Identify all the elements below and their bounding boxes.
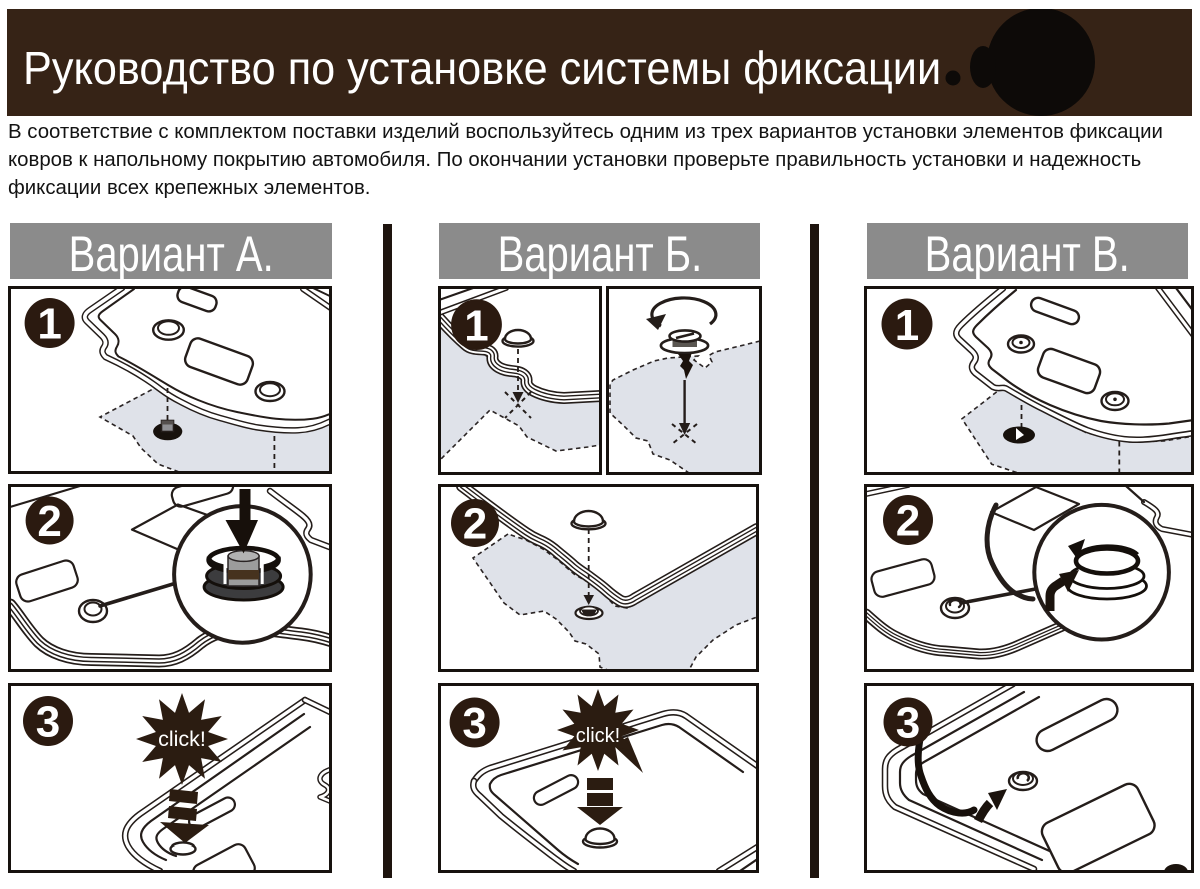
- svg-text:2: 2: [463, 500, 487, 549]
- svg-text:click!: click!: [576, 725, 620, 747]
- svg-text:2: 2: [896, 497, 920, 546]
- svg-text:3: 3: [36, 698, 60, 747]
- svg-text:1: 1: [464, 302, 488, 351]
- svg-text:click!: click!: [158, 727, 206, 751]
- svg-text:3: 3: [896, 699, 920, 748]
- svg-text:1: 1: [37, 300, 61, 349]
- svg-text:1: 1: [895, 301, 919, 350]
- svg-text:3: 3: [462, 699, 486, 748]
- svg-text:2: 2: [37, 497, 61, 546]
